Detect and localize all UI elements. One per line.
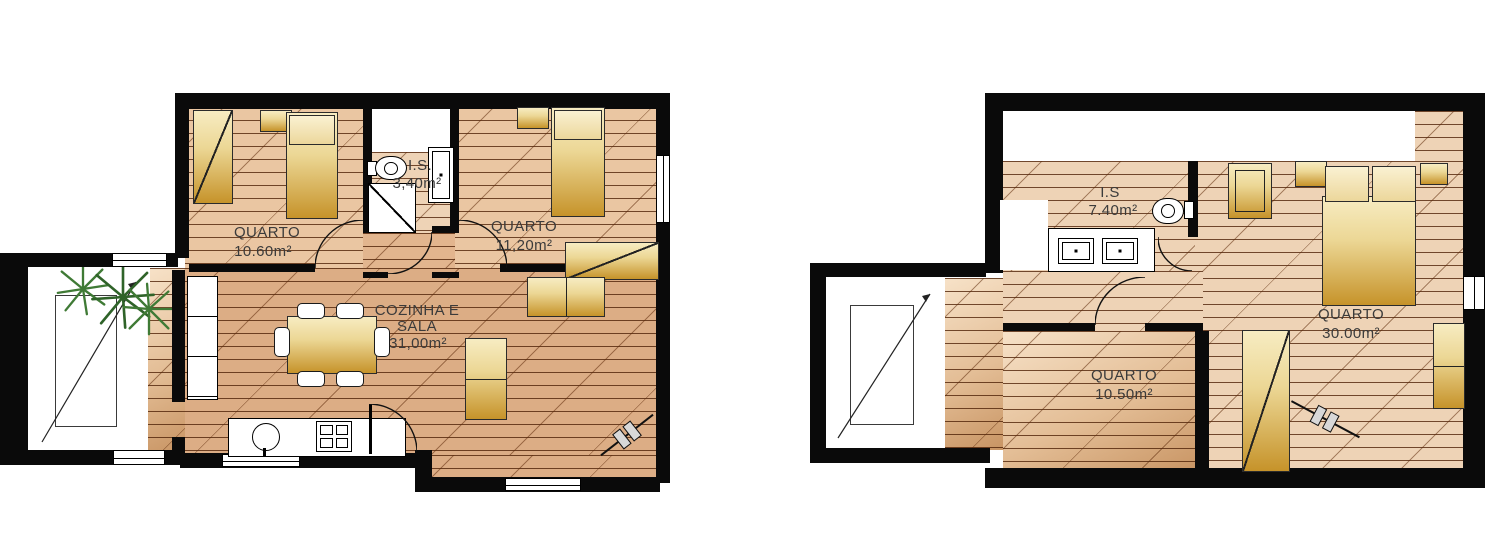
room-name: SALA xyxy=(397,318,437,335)
plant-icon xyxy=(118,278,180,340)
wall xyxy=(985,93,1470,111)
wall xyxy=(1003,323,1095,331)
wall xyxy=(810,263,826,463)
room-area: 10.60m² xyxy=(234,243,292,260)
stove xyxy=(316,421,352,452)
window xyxy=(113,450,165,465)
wall xyxy=(1463,310,1485,488)
floor-plan-canvas: QUARTO 10.60m² I.S. 3,40m² QUARTO 11,20m… xyxy=(0,0,1507,557)
room-name: I.S. xyxy=(408,157,432,174)
bed-double xyxy=(1322,196,1416,306)
chair xyxy=(297,303,325,319)
shelf xyxy=(1295,161,1327,187)
wall xyxy=(1145,323,1203,331)
wall xyxy=(432,226,459,233)
chair xyxy=(336,371,364,387)
room-area: 31,00m² xyxy=(389,335,447,352)
sofa xyxy=(1433,323,1465,409)
wall xyxy=(1195,331,1209,471)
stairs-direction-arrow xyxy=(828,280,943,448)
dresser-inner xyxy=(1235,170,1265,212)
kitchen-sink xyxy=(252,423,280,451)
room-area: 30.00m² xyxy=(1322,325,1380,342)
burner xyxy=(320,438,333,448)
chair xyxy=(274,327,290,357)
nightstand xyxy=(1420,163,1448,185)
pillow xyxy=(289,115,335,145)
sofa xyxy=(465,338,507,420)
chair xyxy=(336,303,364,319)
wall xyxy=(1463,93,1485,276)
burner xyxy=(320,425,333,435)
sofa-cushion-divider xyxy=(466,379,506,380)
room-name: QUARTO xyxy=(1318,306,1384,323)
door-arc xyxy=(1095,277,1145,325)
wall xyxy=(810,263,986,277)
wardrobe xyxy=(193,110,233,204)
wall xyxy=(175,93,189,258)
wall xyxy=(363,272,388,278)
wall xyxy=(985,468,1465,488)
sofa-cushion-divider xyxy=(1434,366,1464,367)
void-strip xyxy=(1003,111,1415,161)
door-arc xyxy=(1158,237,1192,271)
wardrobe xyxy=(565,242,659,280)
sink-tap xyxy=(263,448,266,456)
dining-table xyxy=(287,316,377,374)
room-area: 11,20m² xyxy=(496,237,553,254)
sofa-cushion-divider xyxy=(566,278,567,316)
door-arc xyxy=(369,404,417,452)
kitchen-cabinet xyxy=(187,276,218,400)
exercise-bench xyxy=(1283,392,1368,447)
sofa xyxy=(527,277,605,317)
pillow xyxy=(554,110,602,140)
room-name: QUARTO xyxy=(491,218,557,235)
sink xyxy=(1102,238,1138,264)
toilet-tank xyxy=(1184,201,1194,219)
room-area: 7.40m² xyxy=(1088,202,1137,219)
sink xyxy=(1058,238,1094,264)
exercise-bench xyxy=(592,404,662,466)
room-area: 10.50m² xyxy=(1095,386,1153,403)
window xyxy=(112,253,167,267)
floor-deck-2 xyxy=(945,278,1003,450)
burner xyxy=(336,425,349,435)
room-name: COZINHA E xyxy=(375,302,459,319)
dresser xyxy=(1228,163,1272,219)
window xyxy=(1463,276,1485,310)
room-name: QUARTO xyxy=(1091,367,1157,384)
chair xyxy=(374,327,390,357)
window xyxy=(656,155,670,223)
wall xyxy=(432,272,459,278)
wall xyxy=(810,448,990,463)
wall xyxy=(656,93,670,155)
window xyxy=(505,478,581,491)
toilet xyxy=(1152,198,1184,224)
door-arc xyxy=(315,220,363,268)
room-name: QUARTO xyxy=(234,224,300,241)
shower-tray xyxy=(1000,200,1048,270)
wall xyxy=(189,264,315,272)
chair xyxy=(297,371,325,387)
room-name: I.S xyxy=(1100,184,1120,201)
pillow xyxy=(1325,166,1369,202)
pillow xyxy=(1372,166,1416,202)
door-arc xyxy=(388,232,432,274)
wall xyxy=(0,253,28,465)
room-area: 3,40m² xyxy=(392,175,441,192)
wall xyxy=(172,270,185,402)
nightstand xyxy=(517,107,549,129)
burner xyxy=(336,438,349,448)
floor-strip xyxy=(1415,111,1463,161)
wall xyxy=(1188,161,1198,237)
